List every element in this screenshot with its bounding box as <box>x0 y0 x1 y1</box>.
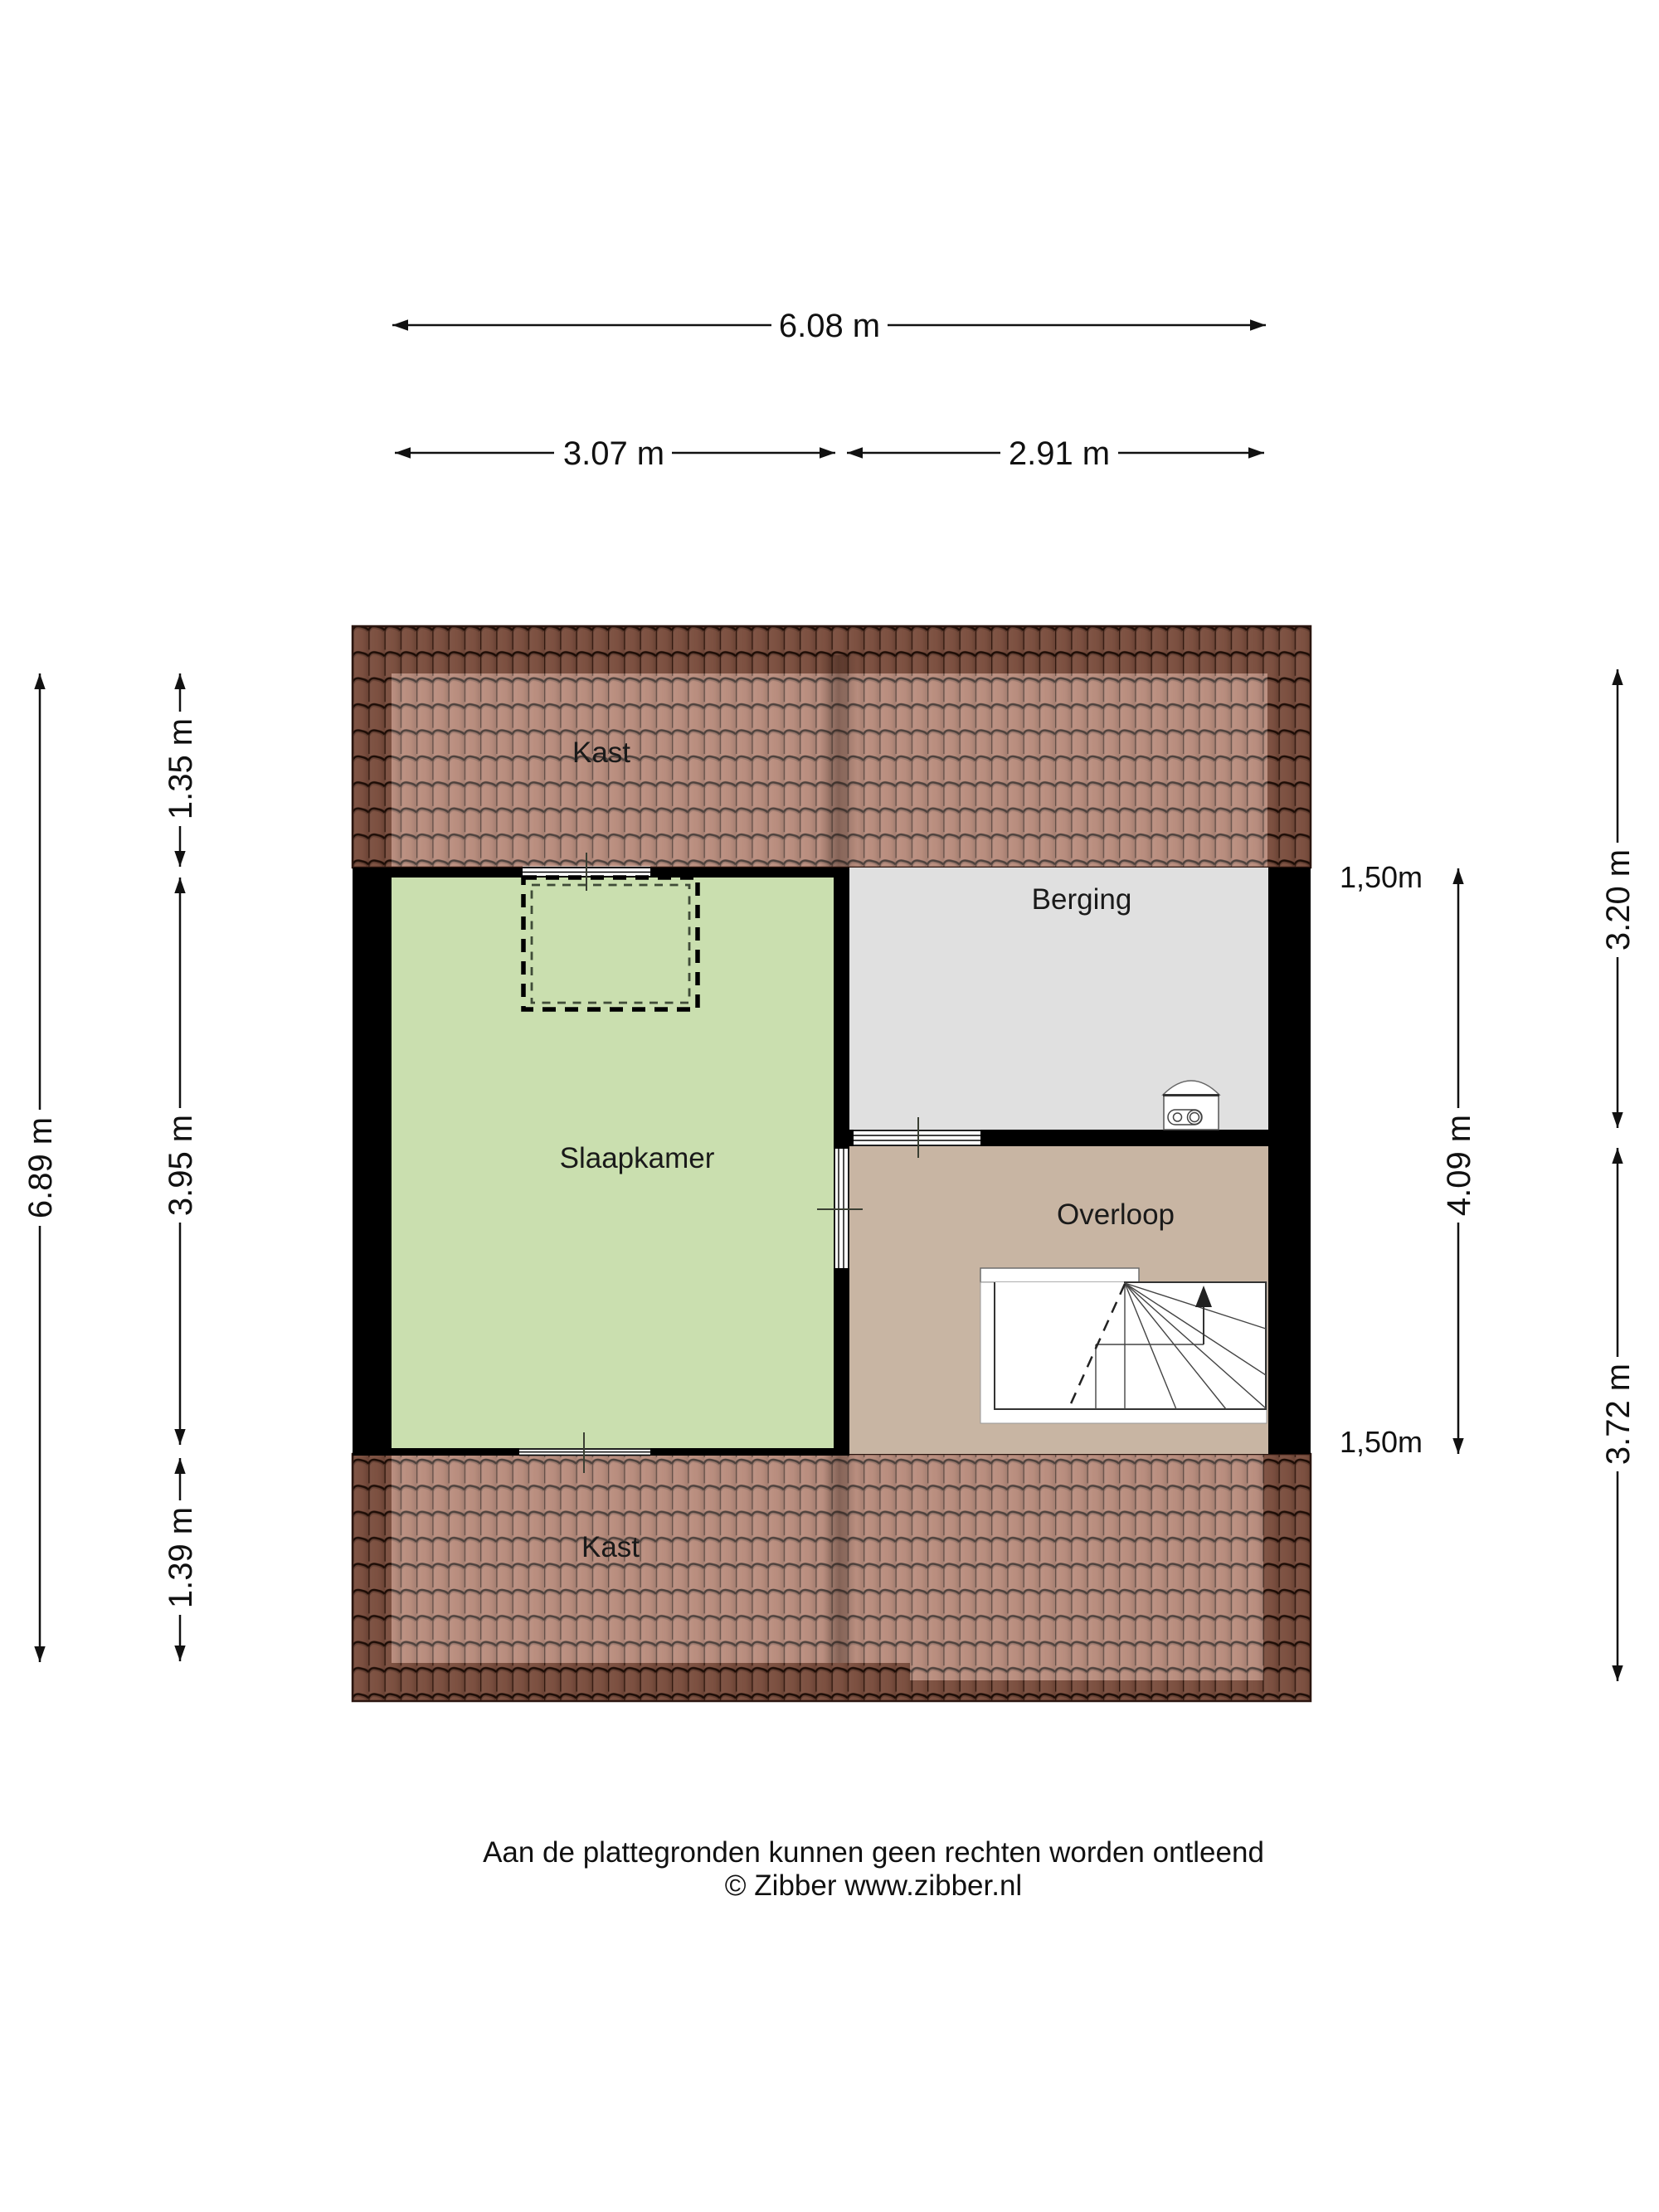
svg-text:1.35 m: 1.35 m <box>163 718 199 819</box>
svg-text:© Zibber www.zibber.nl: © Zibber www.zibber.nl <box>725 1869 1022 1902</box>
svg-text:3.20 m: 3.20 m <box>1600 849 1637 950</box>
svg-text:3.72 m: 3.72 m <box>1600 1364 1637 1465</box>
svg-text:Slaapkamer: Slaapkamer <box>560 1142 715 1174</box>
svg-text:Berging: Berging <box>1032 883 1132 916</box>
svg-text:1,50m: 1,50m <box>1340 1425 1423 1459</box>
svg-text:1.39 m: 1.39 m <box>163 1507 199 1608</box>
svg-text:Overloop: Overloop <box>1057 1198 1175 1231</box>
svg-text:Aan de plattegronden kunnen ge: Aan de plattegronden kunnen geen rechten… <box>483 1836 1264 1869</box>
svg-text:2.91 m: 2.91 m <box>1009 435 1110 472</box>
svg-text:Kast: Kast <box>581 1531 640 1563</box>
svg-text:3.07 m: 3.07 m <box>563 435 664 472</box>
svg-text:1,50m: 1,50m <box>1340 860 1423 894</box>
svg-text:4.09 m: 4.09 m <box>1441 1115 1477 1216</box>
svg-text:6.89 m: 6.89 m <box>22 1117 59 1218</box>
svg-text:3.95 m: 3.95 m <box>163 1115 199 1216</box>
svg-text:Kast: Kast <box>572 737 630 769</box>
svg-text:6.08 m: 6.08 m <box>779 308 880 344</box>
